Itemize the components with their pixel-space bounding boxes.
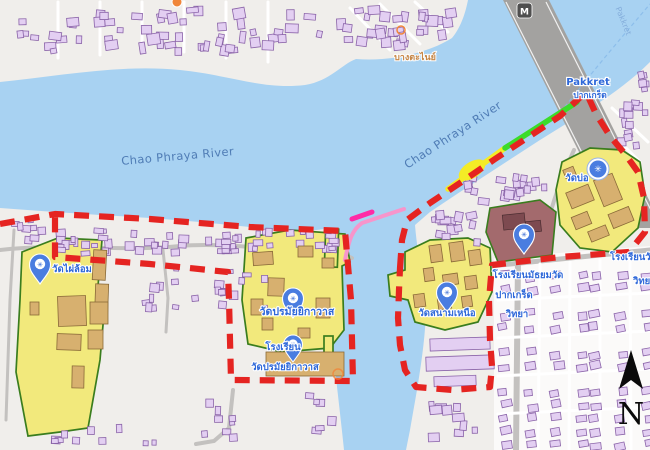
building (100, 12, 108, 19)
building (322, 258, 334, 268)
building (215, 406, 221, 414)
building (527, 413, 537, 422)
building (638, 71, 645, 79)
building (256, 231, 260, 237)
building (125, 242, 134, 251)
building (524, 186, 530, 194)
building (590, 389, 600, 396)
building (49, 31, 62, 41)
building (116, 424, 122, 432)
school-poramai-label-2[interactable]: วัดปรมัยยิกาวาส (251, 361, 319, 373)
building (105, 40, 119, 51)
building (316, 30, 322, 37)
building (460, 420, 467, 430)
building (619, 351, 628, 358)
building (253, 240, 263, 246)
building (436, 210, 445, 220)
building (201, 431, 207, 438)
pakkret-town-label[interactable]: Pakkret (566, 77, 610, 88)
building (232, 7, 246, 20)
building (498, 388, 507, 396)
building (91, 243, 97, 247)
building (550, 427, 560, 436)
building (513, 173, 519, 181)
building (379, 11, 390, 22)
wat-phai-lom-label[interactable]: วัดไผ่ล้อม (52, 263, 92, 275)
building (430, 337, 490, 351)
building (417, 29, 424, 35)
map-svg: M ✳ (0, 0, 650, 450)
building (62, 431, 68, 438)
building (145, 303, 152, 312)
building (315, 242, 324, 249)
school-poramai-label-1[interactable]: โรงเรียน (264, 341, 301, 353)
building (588, 321, 597, 330)
building (645, 415, 650, 423)
building (131, 230, 137, 237)
building (616, 324, 626, 332)
building (51, 438, 58, 443)
building (578, 352, 587, 359)
building (516, 188, 524, 197)
building (590, 443, 602, 450)
building (578, 312, 587, 321)
building (180, 19, 187, 25)
building (17, 30, 24, 38)
building (442, 233, 450, 239)
building (175, 33, 182, 42)
building (344, 36, 353, 42)
building (589, 360, 601, 370)
building (445, 8, 457, 19)
school-pakkret-label-3[interactable]: วิทยา (505, 309, 528, 320)
orange-pin (172, 0, 182, 7)
building (619, 387, 628, 396)
school-edge-label-1[interactable]: โรงเรียนวัด (609, 251, 650, 263)
building (614, 312, 626, 322)
building (590, 428, 601, 437)
building (498, 365, 509, 372)
building (497, 323, 506, 331)
building (76, 36, 82, 44)
building (329, 238, 338, 243)
building (471, 188, 478, 196)
bang-tanai-label[interactable]: บางตะไนย์ (394, 51, 436, 63)
building (175, 48, 182, 56)
building (464, 275, 478, 290)
building (143, 441, 148, 446)
building (287, 10, 295, 20)
building (141, 25, 151, 34)
school-pakkret-label-2[interactable]: ปากเกร็ด (495, 288, 532, 301)
wat-bo-icon[interactable]: ✳ (587, 158, 609, 180)
building (430, 405, 443, 414)
building (327, 416, 336, 425)
building (99, 438, 106, 445)
building (578, 389, 590, 398)
building (452, 413, 464, 422)
building (304, 13, 316, 20)
building (206, 237, 212, 245)
building (242, 273, 251, 277)
building (81, 241, 89, 248)
building (149, 283, 159, 293)
building (225, 44, 235, 53)
building (298, 328, 310, 338)
building (461, 295, 472, 307)
building (278, 34, 286, 43)
building (152, 440, 156, 445)
building (413, 293, 426, 307)
compass-n-label: N (618, 397, 644, 432)
building (132, 13, 143, 20)
building (222, 239, 231, 244)
building (642, 310, 650, 317)
building (314, 399, 320, 405)
building (206, 399, 214, 407)
building (147, 33, 161, 46)
dharma-wheel-icon: ✳ (594, 165, 602, 175)
building (167, 233, 173, 240)
building (616, 282, 628, 290)
building (139, 42, 146, 54)
building (527, 347, 537, 355)
building (72, 366, 84, 388)
building (578, 440, 588, 448)
building (231, 249, 239, 254)
building (426, 355, 494, 371)
building (71, 236, 75, 242)
building (149, 294, 153, 302)
building (217, 23, 226, 31)
building (644, 322, 650, 331)
building (92, 250, 107, 281)
building (315, 425, 324, 431)
building (81, 251, 90, 257)
building (624, 111, 633, 118)
building (549, 390, 559, 398)
building (454, 211, 464, 222)
building (550, 325, 561, 334)
building (252, 246, 257, 251)
building (268, 278, 285, 297)
building (135, 246, 144, 254)
building (638, 79, 646, 87)
building (474, 239, 481, 247)
building (285, 24, 298, 33)
building (165, 41, 177, 49)
building (253, 251, 274, 265)
building (624, 133, 633, 141)
building (579, 403, 590, 410)
building (579, 271, 588, 279)
building (19, 19, 26, 25)
building (550, 440, 561, 447)
building (527, 440, 537, 447)
building (551, 412, 562, 420)
building (502, 440, 513, 449)
building (624, 102, 632, 111)
dharma-wheel-icon: ✳ (37, 261, 43, 269)
building (186, 7, 198, 13)
building (576, 364, 588, 373)
building (524, 326, 534, 334)
building (578, 282, 590, 291)
building (496, 176, 506, 183)
building (469, 220, 476, 229)
building (549, 351, 560, 360)
building (171, 279, 178, 285)
building (589, 284, 599, 292)
building (498, 414, 507, 422)
building (250, 37, 261, 48)
building (239, 277, 245, 284)
building (464, 181, 472, 190)
building (428, 433, 439, 442)
building (30, 235, 39, 242)
map-canvas[interactable]: M ✳ (0, 0, 650, 450)
building (591, 403, 602, 411)
building (641, 87, 647, 92)
building (393, 15, 403, 22)
building (266, 228, 273, 236)
building (50, 48, 57, 54)
building (504, 190, 514, 200)
building (94, 228, 104, 234)
building (525, 361, 536, 370)
building (472, 427, 477, 433)
building (419, 12, 426, 21)
building (423, 267, 435, 281)
building (88, 427, 95, 435)
building (167, 12, 178, 24)
building (90, 302, 108, 324)
building (633, 142, 640, 149)
building (57, 334, 82, 351)
building (239, 31, 246, 43)
building (642, 110, 648, 116)
building (67, 17, 80, 26)
building (478, 197, 489, 205)
building (528, 404, 539, 413)
building (576, 415, 587, 422)
building (88, 330, 103, 349)
building (229, 434, 237, 442)
motorway-badge-label: M (520, 8, 529, 18)
building (267, 243, 273, 248)
building (192, 295, 199, 302)
building (162, 241, 168, 249)
building (554, 361, 565, 370)
building (524, 389, 533, 396)
building (179, 235, 189, 243)
dharma-wheel-icon: ✳ (444, 289, 450, 297)
wat-sanam-nuea-label[interactable]: วัดสนามเหนือ (418, 307, 475, 319)
building (229, 415, 236, 421)
building (551, 399, 561, 408)
building (520, 175, 527, 182)
building (218, 301, 226, 309)
building (215, 416, 223, 423)
building (588, 309, 600, 318)
building (579, 323, 588, 332)
building (30, 225, 36, 231)
building (117, 27, 123, 32)
school-icon: ✳ (521, 231, 527, 239)
building (17, 222, 23, 230)
building (171, 249, 180, 256)
building (218, 289, 225, 295)
building (454, 224, 463, 232)
building (642, 347, 650, 355)
wat-bo-label[interactable]: วัดบ่อ (565, 173, 589, 184)
building (151, 242, 157, 248)
building (449, 241, 466, 262)
school-pakkret-label-1[interactable]: โรงเรียนมัธยมวัด (492, 269, 564, 281)
building (30, 302, 39, 315)
building (375, 28, 386, 39)
building (453, 403, 460, 411)
dharma-wheel-icon: ✳ (290, 295, 296, 303)
building (354, 8, 363, 14)
school-edge-label-2[interactable]: วิทยา (632, 276, 650, 287)
building (434, 375, 476, 386)
building (298, 246, 313, 257)
building (368, 6, 380, 15)
building (215, 37, 223, 47)
building (618, 271, 629, 279)
building (305, 393, 314, 399)
building (98, 235, 108, 241)
building (542, 184, 547, 191)
building (553, 311, 564, 319)
building (250, 29, 257, 36)
building (38, 227, 46, 235)
building (262, 318, 273, 330)
building (588, 414, 598, 423)
building (261, 275, 267, 282)
building (592, 272, 601, 280)
building (356, 36, 367, 47)
building (57, 296, 86, 327)
building (625, 121, 633, 128)
building (223, 232, 231, 239)
building (233, 236, 238, 242)
building (342, 24, 352, 33)
building (442, 405, 452, 415)
building (262, 40, 274, 50)
building (468, 249, 482, 266)
building (531, 177, 539, 186)
wat-poramaiyikawat-label[interactable]: วัดปรมัยยิกาวาส (260, 306, 335, 318)
building (525, 430, 535, 439)
building (429, 244, 443, 263)
building (576, 429, 586, 437)
building (30, 35, 38, 41)
building (72, 437, 79, 444)
building (329, 246, 336, 250)
building (172, 304, 179, 309)
building (645, 439, 650, 447)
building (438, 30, 447, 41)
building (499, 348, 510, 356)
